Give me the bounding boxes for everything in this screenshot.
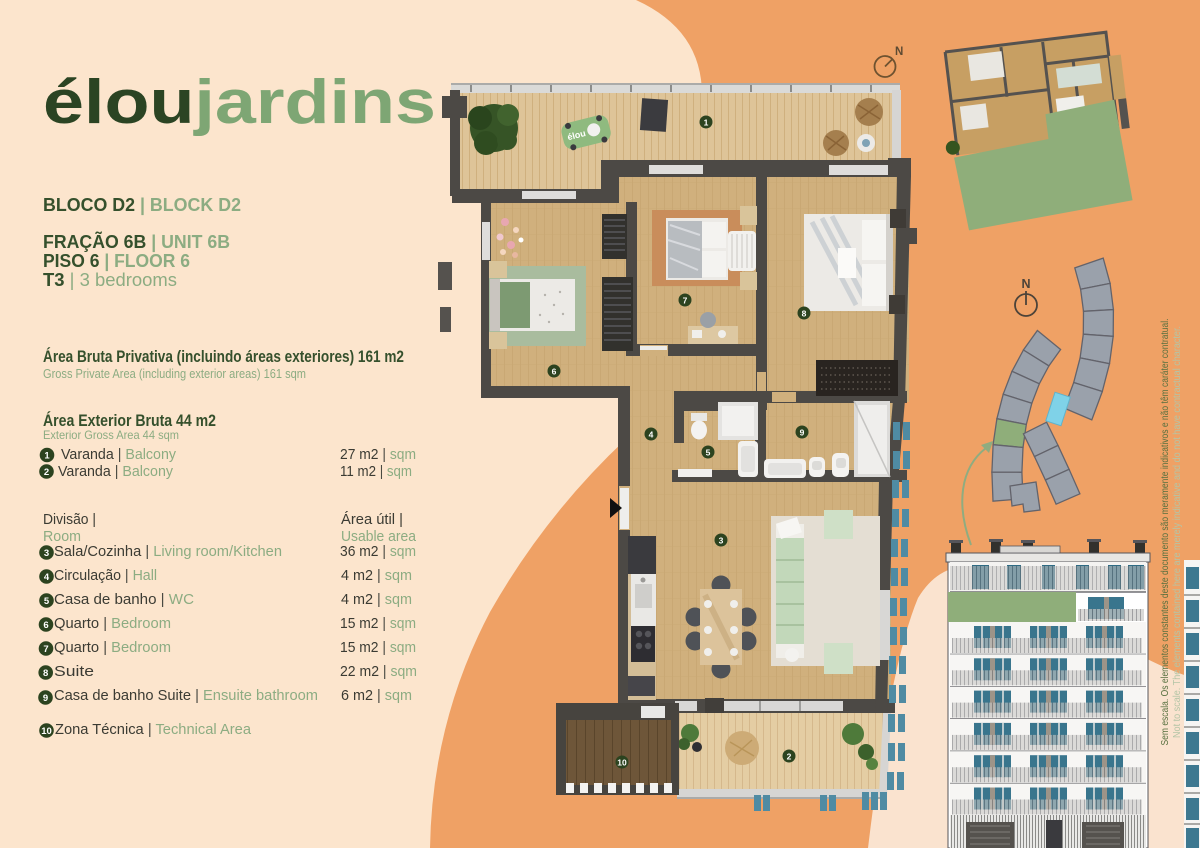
svg-text:4 m2 | sqm: 4 m2 | sqm	[341, 591, 412, 608]
svg-text:Sala/Cozinha | Living room/Kit: Sala/Cozinha | Living room/Kitchen	[54, 543, 282, 560]
svg-text:Suite: Suite	[54, 663, 94, 680]
svg-text:Circulação | Hall: Circulação | Hall	[54, 567, 157, 584]
svg-text:3: 3	[44, 548, 49, 559]
svg-text:7: 7	[43, 644, 48, 655]
svg-text:Área útil |: Área útil |	[341, 511, 403, 528]
svg-text:8: 8	[43, 668, 48, 679]
svg-text:10: 10	[617, 758, 627, 768]
svg-text:5: 5	[44, 596, 50, 607]
svg-text:Quarto | Bedroom: Quarto | Bedroom	[54, 639, 171, 656]
svg-text:27 m2 | sqm: 27 m2 | sqm	[340, 446, 416, 463]
svg-text:Varanda | Balcony: Varanda | Balcony	[58, 463, 173, 480]
svg-text:Not to scale. The elements con: Not to scale. The elements contained her…	[1171, 326, 1183, 738]
svg-text:T3 | 3 bedrooms: T3 | 3 bedrooms	[43, 269, 177, 290]
svg-text:2: 2	[44, 467, 49, 478]
svg-text:N: N	[1021, 277, 1030, 291]
svg-text:9: 9	[43, 693, 48, 704]
svg-text:BLOCO D2 | BLOCK D2: BLOCO D2 | BLOCK D2	[43, 194, 241, 215]
svg-text:15 m2 | sqm: 15 m2 | sqm	[340, 639, 416, 656]
svg-text:4: 4	[649, 430, 654, 440]
svg-text:2: 2	[787, 752, 792, 762]
svg-text:PISO 6 | FLOOR 6: PISO 6 | FLOOR 6	[43, 250, 190, 271]
svg-text:6 m2 | sqm: 6 m2 | sqm	[341, 687, 412, 704]
svg-text:éloujardins: éloujardins	[43, 68, 436, 137]
svg-text:3: 3	[719, 536, 724, 546]
svg-text:15 m2 | sqm: 15 m2 | sqm	[340, 615, 416, 632]
svg-text:22 m2 | sqm: 22 m2 | sqm	[340, 663, 417, 680]
svg-text:Quarto | Bedroom: Quarto | Bedroom	[54, 615, 171, 632]
svg-text:Casa de banho Suite | Ensuite: Casa de banho Suite | Ensuite bathroom	[54, 687, 318, 704]
svg-text:Zona Técnica | Technical Area: Zona Técnica | Technical Area	[55, 721, 252, 738]
svg-text:Área Bruta Privativa (incluind: Área Bruta Privativa (incluindo áreas ex…	[43, 347, 404, 366]
svg-text:FRAÇÃO 6B | UNIT 6B: FRAÇÃO 6B | UNIT 6B	[43, 231, 230, 252]
svg-text:Divisão |: Divisão |	[43, 511, 96, 528]
svg-text:6: 6	[552, 367, 557, 377]
svg-text:10: 10	[41, 726, 52, 737]
svg-text:8: 8	[802, 309, 807, 319]
svg-text:6: 6	[43, 620, 48, 631]
svg-text:36 m2 | sqm: 36 m2 | sqm	[340, 543, 416, 560]
svg-text:7: 7	[683, 296, 688, 306]
svg-text:5: 5	[706, 448, 711, 458]
svg-text:11 m2 | sqm: 11 m2 | sqm	[340, 463, 412, 480]
svg-text:1: 1	[44, 451, 50, 462]
svg-text:1: 1	[704, 118, 709, 128]
svg-text:4 m2 | sqm: 4 m2 | sqm	[341, 567, 412, 584]
svg-text:N: N	[895, 46, 903, 58]
svg-text:Varanda | Balcony: Varanda | Balcony	[61, 446, 176, 463]
svg-text:Gross Private Area (including: Gross Private Area (including exterior a…	[43, 366, 306, 381]
svg-text:4: 4	[44, 572, 50, 583]
svg-text:Sem escala. Os elementos const: Sem escala. Os elementos constantes dest…	[1159, 319, 1171, 746]
svg-text:Exterior Gross Area 44 sqm: Exterior Gross Area 44 sqm	[43, 428, 179, 442]
svg-text:9: 9	[800, 428, 805, 438]
svg-text:Casa de banho | WC: Casa de banho | WC	[54, 591, 194, 608]
